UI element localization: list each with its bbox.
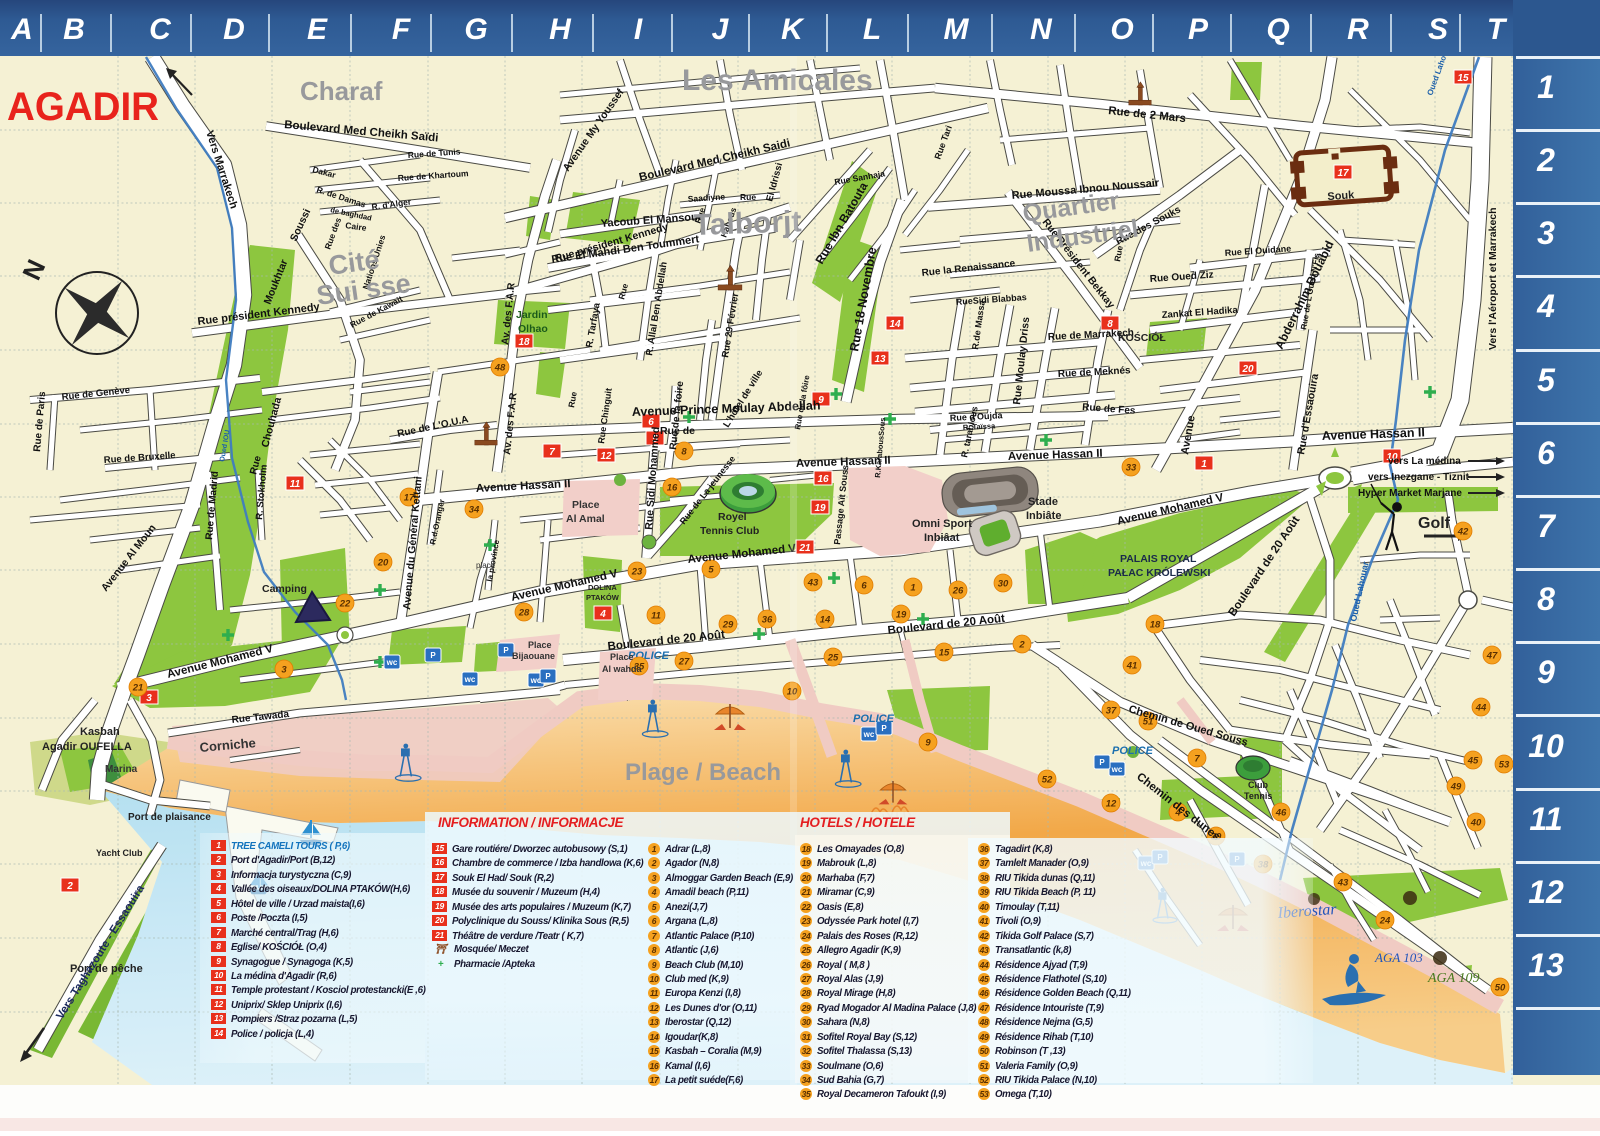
svg-text:Al Amal: Al Amal: [566, 513, 605, 525]
svg-text:52: 52: [1042, 775, 1053, 786]
svg-text:AGA 109: AGA 109: [1427, 971, 1479, 986]
svg-text:22: 22: [339, 599, 351, 610]
svg-text:PTAKÓW: PTAKÓW: [586, 593, 620, 602]
svg-text:Kasbah: Kasbah: [80, 726, 120, 738]
svg-text:Inbiâat: Inbiâat: [924, 532, 960, 544]
svg-text:Golf: Golf: [1418, 515, 1451, 532]
svg-text:53: 53: [1499, 760, 1510, 771]
svg-text:12: 12: [1106, 799, 1117, 810]
svg-text:6: 6: [861, 581, 867, 592]
svg-text:23: 23: [631, 567, 643, 578]
svg-text:Charaf: Charaf: [300, 76, 383, 106]
svg-text:36: 36: [762, 615, 773, 626]
svg-text:Omni Sport: Omni Sport: [912, 518, 972, 530]
svg-text:Place: Place: [528, 640, 552, 650]
svg-text:40: 40: [1470, 818, 1482, 829]
svg-text:26: 26: [952, 586, 964, 597]
svg-text:13: 13: [874, 354, 886, 365]
svg-text:wc: wc: [1111, 765, 1123, 774]
svg-text:Souk: Souk: [1327, 189, 1356, 203]
svg-text:4: 4: [599, 609, 606, 620]
svg-text:wc: wc: [863, 730, 875, 739]
svg-text:27: 27: [678, 657, 690, 668]
svg-text:DOLINA: DOLINA: [588, 583, 617, 592]
svg-text:7: 7: [549, 447, 555, 458]
svg-text:POLICE: POLICE: [1112, 745, 1154, 757]
svg-text:Place: Place: [572, 499, 600, 511]
svg-text:Marina: Marina: [105, 764, 138, 775]
svg-text:46: 46: [1275, 808, 1287, 819]
svg-text:42: 42: [1457, 527, 1469, 538]
svg-text:2: 2: [66, 881, 73, 892]
svg-text:37: 37: [1106, 706, 1117, 717]
svg-text:P: P: [430, 651, 436, 660]
svg-text:Talborjt: Talborjt: [693, 205, 802, 242]
svg-text:41: 41: [1126, 661, 1138, 672]
svg-text:Al wahda: Al wahda: [602, 664, 643, 674]
svg-text:KOŚCIÓŁ: KOŚCIÓŁ: [1118, 331, 1166, 344]
svg-text:11: 11: [651, 611, 661, 622]
svg-text:Yacht Club: Yacht Club: [96, 848, 143, 858]
svg-text:Rue: Rue: [740, 192, 756, 202]
svg-text:AGADIR: AGADIR: [7, 85, 159, 129]
svg-text:18: 18: [1150, 620, 1161, 631]
svg-text:43: 43: [807, 578, 819, 589]
svg-text:18: 18: [518, 337, 530, 348]
svg-text:25: 25: [827, 653, 839, 664]
svg-text:24: 24: [1379, 916, 1391, 927]
svg-text:9: 9: [925, 738, 931, 749]
svg-text:2: 2: [1018, 640, 1025, 651]
svg-text:11: 11: [290, 479, 301, 490]
svg-text:3: 3: [281, 665, 287, 676]
svg-text:19: 19: [896, 610, 907, 621]
svg-text:P: P: [881, 724, 887, 733]
svg-text:16: 16: [817, 474, 829, 485]
svg-text:PALAIS ROYAL: PALAIS ROYAL: [1120, 553, 1197, 565]
svg-text:45: 45: [1467, 756, 1479, 767]
svg-text:19: 19: [814, 503, 826, 514]
svg-text:15: 15: [939, 648, 950, 659]
svg-text:20: 20: [1241, 364, 1254, 375]
svg-text:Club: Club: [1248, 780, 1268, 790]
svg-text:21: 21: [132, 683, 144, 694]
svg-text:Hyper Market Marjane: Hyper Market Marjane: [1358, 488, 1462, 499]
svg-text:14: 14: [820, 615, 831, 626]
svg-text:3: 3: [146, 693, 152, 704]
svg-text:12: 12: [600, 451, 612, 462]
svg-text:Tennis: Tennis: [1244, 791, 1272, 801]
svg-text:1: 1: [1201, 459, 1207, 470]
svg-text:48: 48: [494, 363, 506, 374]
svg-text:43: 43: [1337, 878, 1349, 889]
svg-text:Tennis Club: Tennis Club: [700, 525, 759, 537]
svg-text:Royel: Royel: [718, 511, 747, 523]
svg-text:Place: Place: [610, 652, 634, 662]
svg-text:33: 33: [1126, 463, 1137, 474]
svg-text:Les Amicales: Les Amicales: [682, 64, 873, 97]
svg-text:AGA 103: AGA 103: [1374, 950, 1423, 965]
svg-text:34: 34: [469, 505, 480, 516]
svg-text:15: 15: [1457, 73, 1469, 84]
svg-text:7: 7: [1194, 754, 1200, 765]
svg-text:P: P: [1099, 758, 1105, 767]
svg-text:28: 28: [518, 608, 530, 619]
svg-text:Vers l'Aéroport et Marrakech: Vers l'Aéroport et Marrakech: [1487, 207, 1499, 350]
svg-text:16: 16: [667, 483, 678, 494]
svg-text:POLICE: POLICE: [853, 713, 895, 725]
svg-text:Jardin: Jardin: [516, 309, 548, 321]
svg-text:17: 17: [1337, 168, 1349, 179]
svg-text:1: 1: [910, 583, 915, 594]
svg-text:Camping: Camping: [262, 583, 307, 595]
svg-text:R. Taïssa: R. Taïssa: [963, 421, 997, 432]
svg-text:49: 49: [1450, 782, 1462, 793]
svg-text:wc: wc: [386, 658, 398, 667]
svg-text:6: 6: [648, 417, 654, 428]
svg-text:Plage / Beach: Plage / Beach: [625, 759, 781, 786]
svg-text:14: 14: [889, 319, 901, 330]
svg-text:Port de plaisance: Port de plaisance: [128, 812, 211, 823]
svg-text:47: 47: [1486, 651, 1498, 662]
svg-text:Agadir OUFELLA: Agadir OUFELLA: [42, 741, 132, 753]
svg-text:5: 5: [708, 565, 714, 576]
svg-text:vers Inezgane - Tiznit: vers Inezgane - Tiznit: [1368, 472, 1470, 483]
svg-text:Inbiâte: Inbiâte: [1026, 510, 1061, 522]
svg-text:50: 50: [1495, 983, 1506, 994]
svg-text:P: P: [503, 646, 509, 655]
svg-text:44: 44: [1475, 703, 1487, 714]
svg-text:P: P: [545, 672, 551, 681]
svg-text:Stade: Stade: [1028, 496, 1058, 508]
svg-text:20: 20: [377, 558, 389, 569]
svg-text:Olhao: Olhao: [518, 323, 548, 335]
svg-text:30: 30: [998, 579, 1009, 590]
svg-text:21: 21: [798, 543, 811, 554]
svg-text:vers La médina: vers La médina: [1388, 456, 1461, 467]
svg-text:place: place: [476, 561, 496, 570]
svg-text:PAŁAC KRÓLEWSKI: PAŁAC KRÓLEWSKI: [1108, 566, 1211, 579]
svg-text:Bijaouane: Bijaouane: [512, 651, 555, 661]
svg-text:wc: wc: [464, 675, 476, 684]
svg-text:8: 8: [681, 447, 687, 458]
